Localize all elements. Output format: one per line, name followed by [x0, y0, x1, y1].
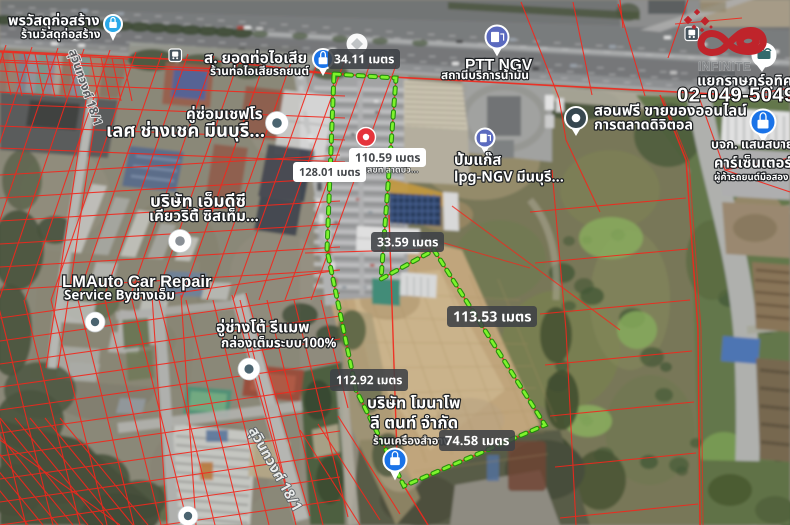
svg-text:INFINITE: INFINITE — [698, 60, 751, 74]
svg-text:02-049-5049: 02-049-5049 — [677, 84, 790, 107]
